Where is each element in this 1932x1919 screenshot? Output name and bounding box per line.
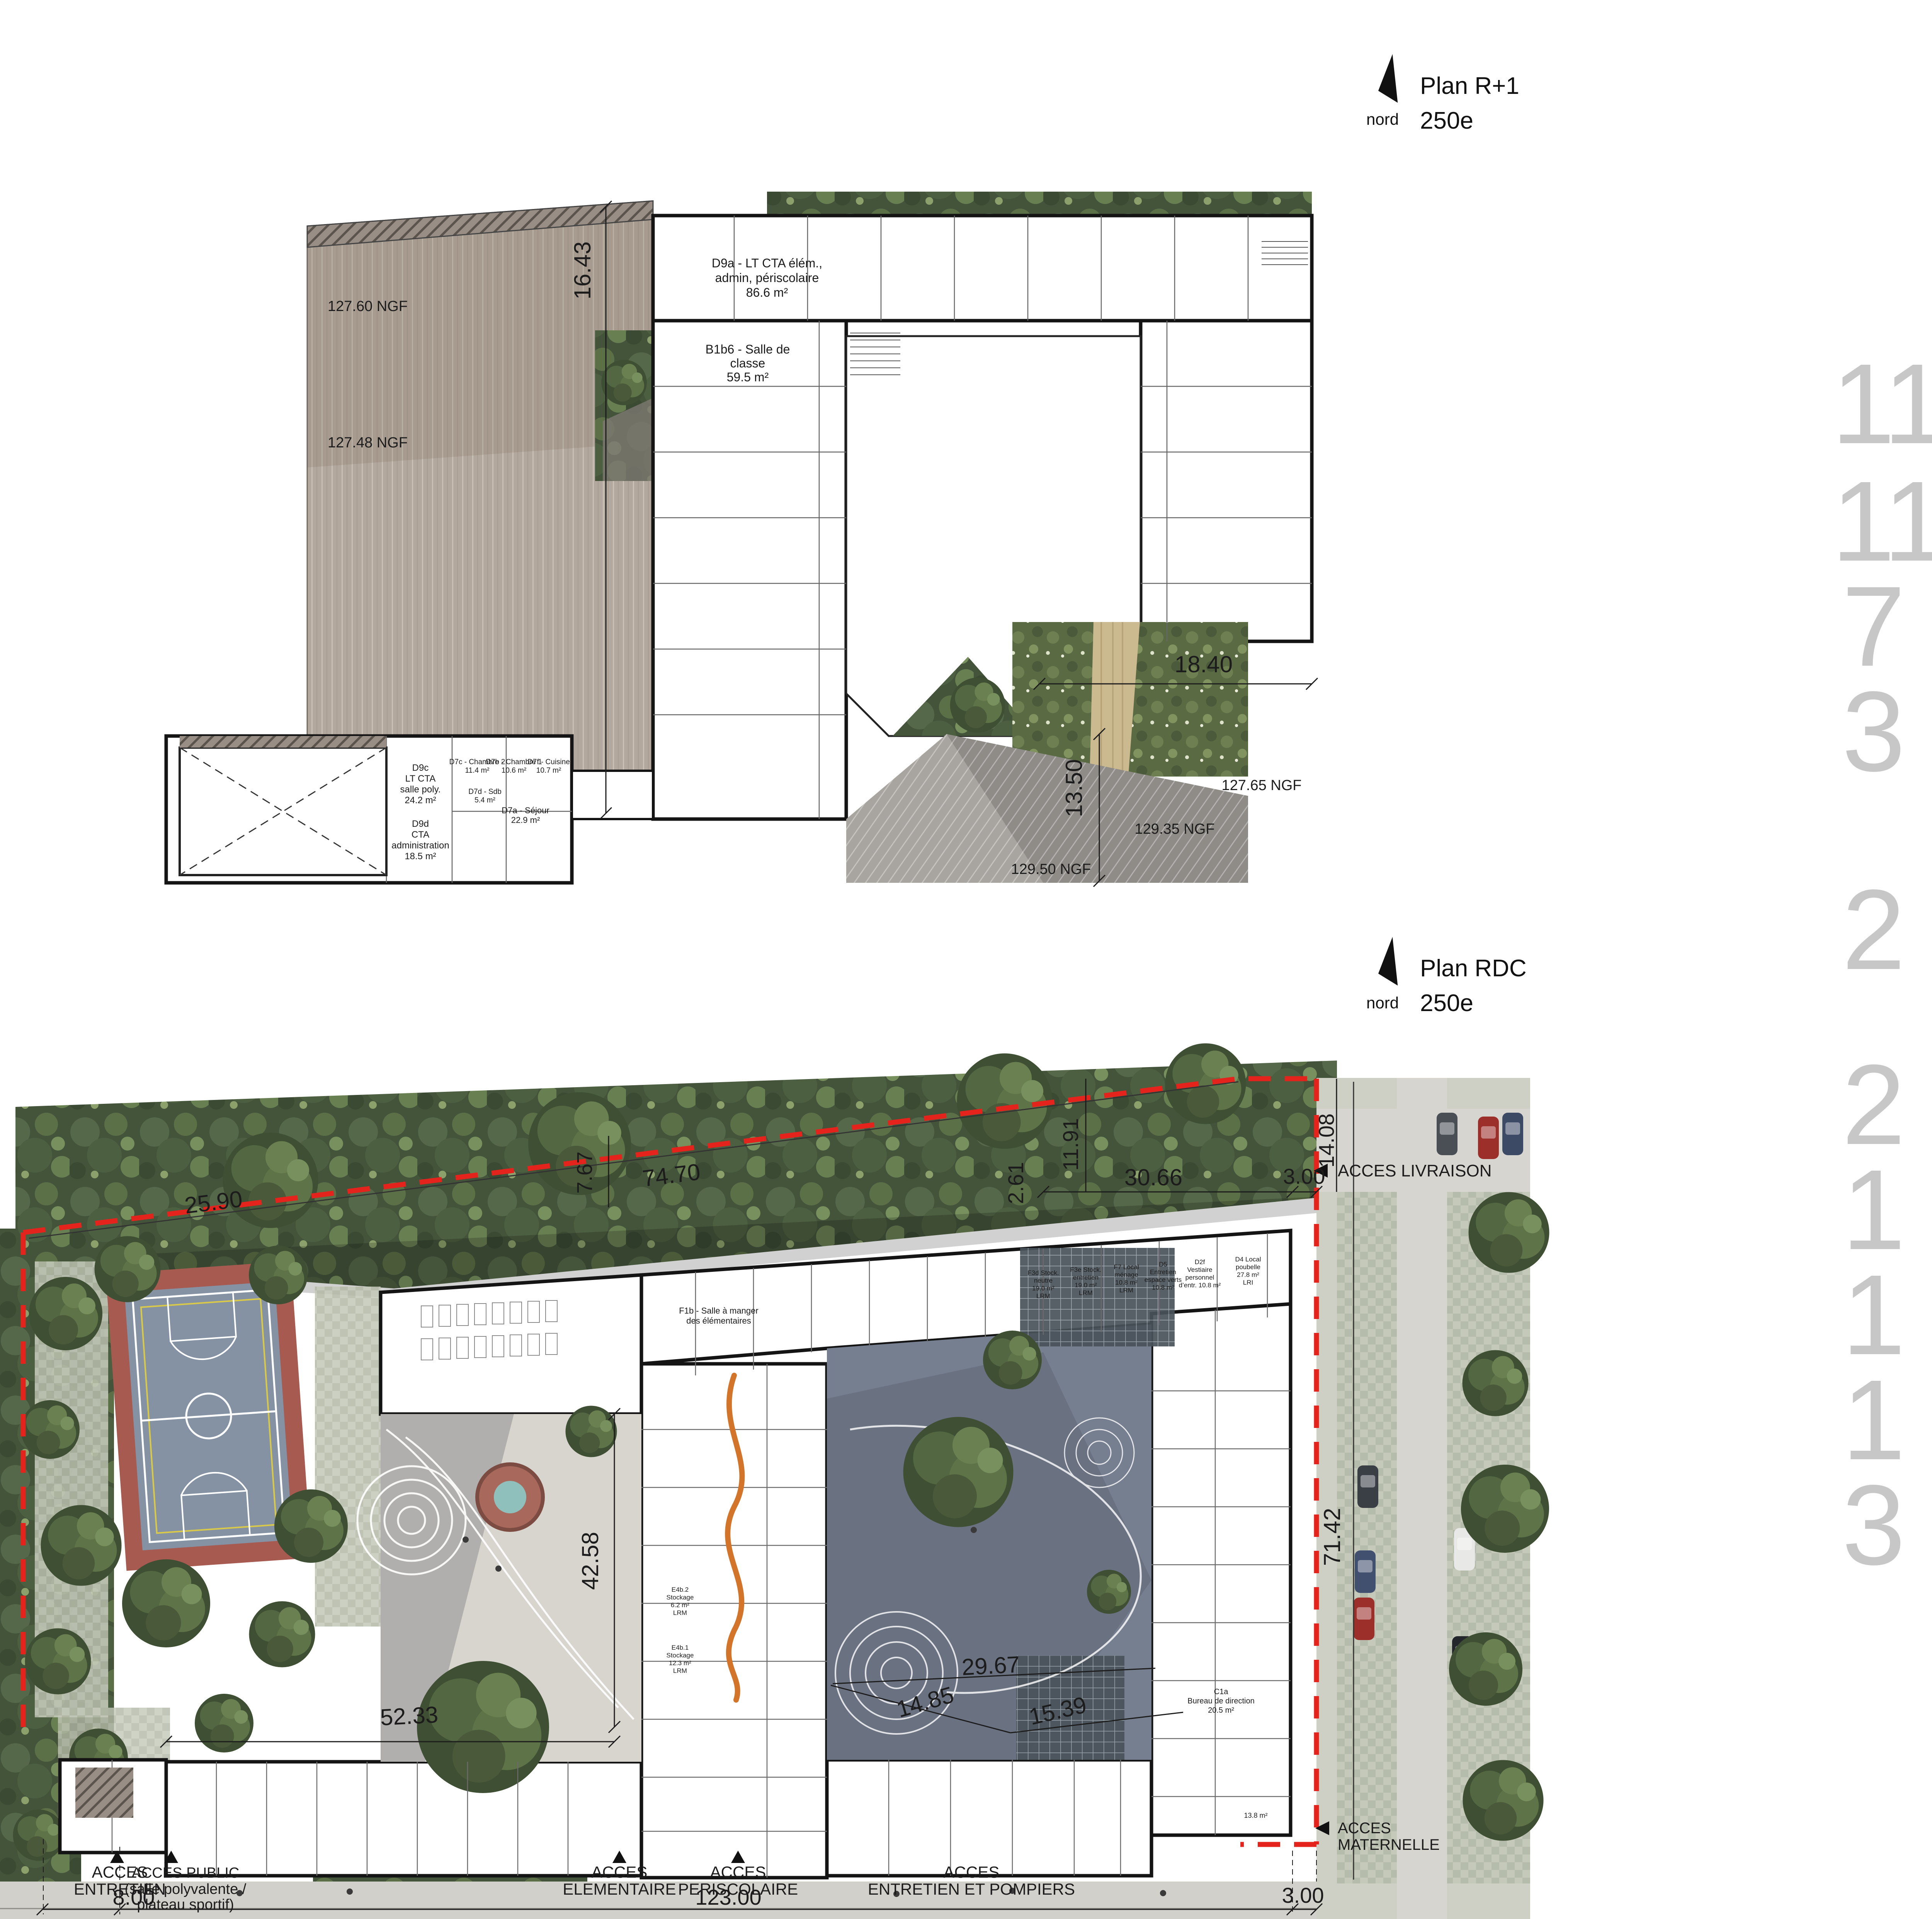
- dim: 3.00: [1282, 1883, 1324, 1907]
- svg-text:F3e Stock.: F3e Stock.: [1070, 1266, 1101, 1273]
- access-label: ACCES: [1338, 1820, 1391, 1837]
- dim: 7.67: [572, 1152, 597, 1194]
- svg-text:F7 Local: F7 Local: [1114, 1263, 1139, 1271]
- svg-text:11.4 m²: 11.4 m²: [465, 767, 489, 775]
- svg-text:PERISCOLAIRE: PERISCOLAIRE: [678, 1880, 798, 1898]
- svg-text:D9c: D9c: [412, 763, 429, 773]
- svg-text:10.8 m²: 10.8 m²: [1152, 1284, 1174, 1291]
- legend-count: 11: [1832, 359, 1913, 448]
- svg-text:Entretien: Entretien: [1150, 1268, 1176, 1276]
- plan-rdc-title-text: Plan RDC: [1420, 951, 1527, 986]
- svg-text:ACCES: ACCES: [944, 1863, 1000, 1881]
- level-ngf: 129.50 NGF: [1011, 861, 1091, 877]
- dim-16-43: 16.43: [570, 241, 595, 299]
- access-label: MATERNELLE: [1338, 1836, 1440, 1853]
- svg-text:LRM: LRM: [673, 1667, 687, 1674]
- svg-text:classe: classe: [730, 356, 765, 370]
- svg-text:E4b.1: E4b.1: [672, 1644, 689, 1651]
- svg-text:D7a - Séjour: D7a - Séjour: [502, 806, 549, 815]
- legend-count: 3: [1832, 687, 1913, 776]
- svg-text:admin, périscolaire: admin, périscolaire: [715, 271, 819, 285]
- svg-text:D5: D5: [1159, 1261, 1167, 1268]
- svg-text:13.8 m²: 13.8 m²: [1244, 1812, 1267, 1819]
- dim: 30.66: [1124, 1164, 1182, 1190]
- dim: 42.58: [577, 1532, 603, 1590]
- plan-r1-scale: 250e: [1420, 104, 1519, 138]
- plan-r1-title-text: Plan R+1: [1420, 69, 1519, 104]
- dim: 11.91: [1058, 1118, 1083, 1171]
- svg-text:LRI: LRI: [1243, 1279, 1253, 1286]
- legend-count: 11: [1832, 477, 1913, 566]
- plan-r1-drawing: [166, 192, 1318, 887]
- svg-text:LT CTA: LT CTA: [405, 773, 436, 784]
- svg-text:D7d - Sdb: D7d - Sdb: [468, 788, 502, 796]
- svg-text:D7f - Cuisine: D7f - Cuisine: [527, 758, 570, 766]
- svg-text:Bureau de direction: Bureau de direction: [1187, 1697, 1254, 1705]
- level-ngf: 127.65 NGF: [1222, 777, 1302, 794]
- svg-text:C1a: C1a: [1214, 1688, 1229, 1696]
- svg-text:18.5 m²: 18.5 m²: [405, 851, 436, 862]
- dim-13-50: 13.50: [1061, 759, 1087, 817]
- svg-text:Stockage: Stockage: [667, 1652, 694, 1659]
- svg-text:ménage: ménage: [1114, 1271, 1138, 1278]
- svg-text:5.4 m²: 5.4 m²: [474, 796, 495, 804]
- svg-text:6.2 m²: 6.2 m²: [671, 1601, 690, 1609]
- svg-text:Vestiaire: Vestiaire: [1187, 1266, 1212, 1273]
- svg-text:ACCES PUBLIC: ACCES PUBLIC: [132, 1865, 240, 1881]
- svg-text:neutre: neutre: [1034, 1277, 1053, 1284]
- legend-count: 1: [1832, 1270, 1913, 1359]
- svg-text:12.3 m²: 12.3 m²: [669, 1659, 691, 1667]
- svg-text:LRM: LRM: [1119, 1287, 1133, 1294]
- svg-text:D9a - LT CTA élém.,: D9a - LT CTA élém.,: [712, 256, 822, 270]
- plans-canvas: 16.43 18.40 13.50 127.60 NGF 127.48 NGF …: [0, 0, 1932, 1919]
- svg-text:LRM: LRM: [673, 1609, 687, 1616]
- legend-count: 1: [1832, 1165, 1913, 1254]
- level-ngf: 129.35 NGF: [1135, 821, 1215, 837]
- svg-text:19.0 m²: 19.0 m²: [1032, 1285, 1054, 1292]
- legend-count: 2: [1832, 1060, 1913, 1149]
- svg-text:plateau sportif): plateau sportif): [137, 1897, 234, 1913]
- dim-18-40: 18.40: [1175, 651, 1233, 677]
- svg-text:d’entr. 10.8 m²: d’entr. 10.8 m²: [1179, 1282, 1221, 1289]
- svg-text:salle poly.: salle poly.: [400, 784, 441, 795]
- svg-text:espace verts: espace verts: [1145, 1276, 1182, 1283]
- svg-text:Stockage: Stockage: [667, 1594, 694, 1601]
- svg-text:LRM: LRM: [1036, 1292, 1050, 1300]
- svg-text:E4b.2: E4b.2: [672, 1586, 689, 1593]
- svg-text:10.6 m²: 10.6 m²: [502, 767, 526, 775]
- dim: 71.42: [1319, 1508, 1345, 1566]
- svg-text:LRM: LRM: [1079, 1289, 1093, 1297]
- svg-text:F3d Stock.: F3d Stock.: [1027, 1269, 1059, 1277]
- legend-count: 3: [1832, 1480, 1913, 1569]
- svg-text:20.5 m²: 20.5 m²: [1208, 1706, 1234, 1715]
- access-label: ACCES LIVRAISON: [1338, 1161, 1492, 1180]
- dim: 29.67: [961, 1651, 1020, 1680]
- plan-rdc-title: Plan RDC 250e: [1420, 951, 1527, 1021]
- legend-count: 2: [1832, 885, 1913, 974]
- svg-text:administration: administration: [391, 840, 449, 851]
- svg-text:ACCES: ACCES: [592, 1863, 648, 1881]
- svg-text:27.8 m²: 27.8 m²: [1237, 1271, 1259, 1278]
- svg-text:ENTRETIEN ET POMPIERS: ENTRETIEN ET POMPIERS: [868, 1880, 1075, 1898]
- svg-text:24.2 m²: 24.2 m²: [405, 795, 436, 806]
- dim: 14.08: [1314, 1113, 1338, 1168]
- svg-text:D9d: D9d: [412, 819, 429, 829]
- svg-text:F1b - Salle à manger: F1b - Salle à manger: [679, 1306, 758, 1316]
- svg-text:D2f: D2f: [1195, 1258, 1205, 1266]
- svg-text:D4 Local: D4 Local: [1235, 1256, 1261, 1263]
- svg-text:22.9 m²: 22.9 m²: [511, 815, 540, 825]
- svg-text:19.0 m²: 19.0 m²: [1075, 1282, 1097, 1289]
- svg-text:ACCES: ACCES: [710, 1863, 766, 1881]
- svg-text:(salle polyvalente /: (salle polyvalente /: [125, 1881, 247, 1897]
- level-ngf: 127.48 NGF: [328, 435, 408, 451]
- svg-text:personnel: personnel: [1185, 1274, 1214, 1281]
- svg-text:ELEMENTAIRE: ELEMENTAIRE: [563, 1880, 676, 1898]
- north-label-r1: nord: [1366, 110, 1399, 129]
- svg-text:des élémentaires: des élémentaires: [686, 1316, 751, 1326]
- north-label-rdc: nord: [1366, 994, 1399, 1012]
- dim: 2.61: [1003, 1162, 1028, 1204]
- north-arrow-icon: [1378, 937, 1401, 986]
- svg-text:poubelle: poubelle: [1236, 1263, 1260, 1271]
- svg-text:entretien: entretien: [1073, 1274, 1099, 1281]
- svg-text:59.5 m²: 59.5 m²: [727, 370, 769, 384]
- legend-count: 1: [1832, 1375, 1913, 1464]
- legend-count: 7: [1832, 582, 1913, 671]
- svg-text:10.7 m²: 10.7 m²: [536, 767, 561, 775]
- level-ngf: 127.60 NGF: [328, 298, 408, 314]
- plan-rdc-scale: 250e: [1420, 986, 1527, 1021]
- svg-text:CTA: CTA: [412, 829, 429, 840]
- svg-text:10.8 m²: 10.8 m²: [1115, 1279, 1138, 1286]
- north-arrow-icon: [1378, 54, 1401, 103]
- dim: 52.33: [379, 1701, 439, 1730]
- svg-text:86.6 m²: 86.6 m²: [746, 286, 788, 299]
- plan-r1-title: Plan R+1 250e: [1420, 69, 1519, 138]
- svg-text:B1b6 - Salle de: B1b6 - Salle de: [706, 342, 790, 356]
